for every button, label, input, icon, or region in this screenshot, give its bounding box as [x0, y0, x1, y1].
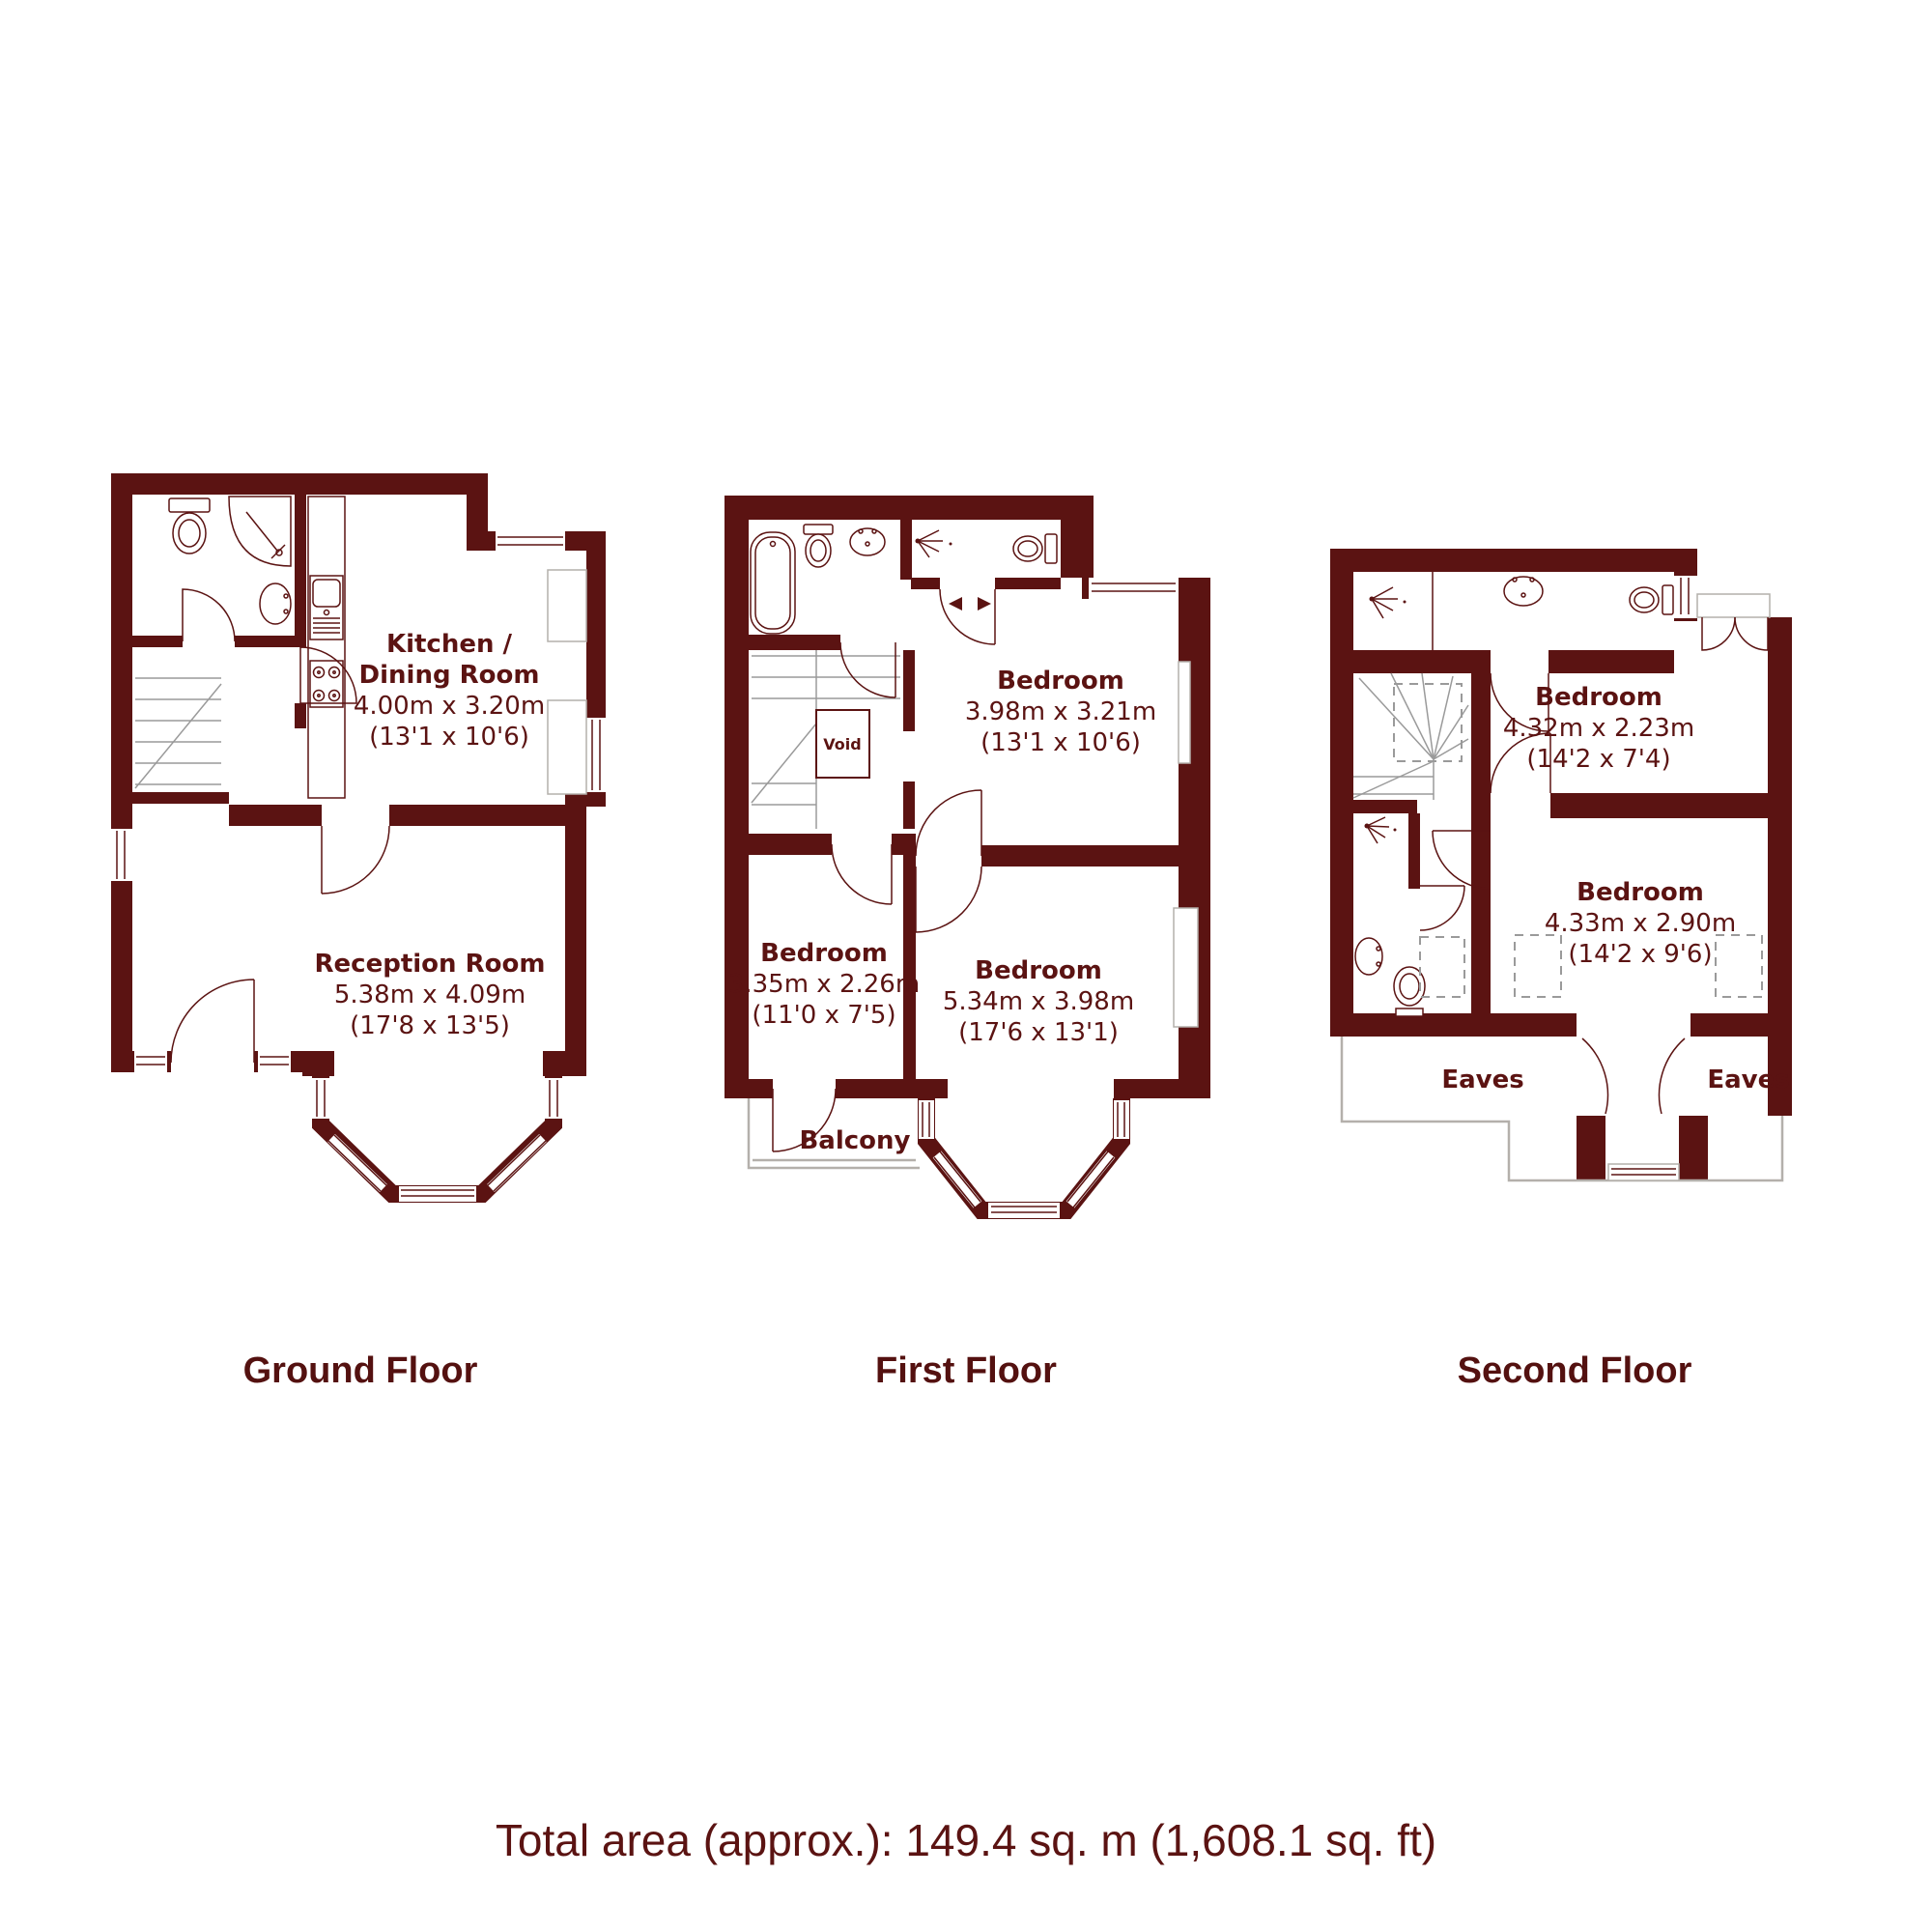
shower-cubicle-icon: [1365, 817, 1397, 843]
bedroom-front-metric: 4.33m x 2.90m: [1545, 909, 1736, 938]
toilet-icon: [169, 498, 210, 554]
bedroom-front-label: Bedroom: [975, 956, 1102, 985]
kitchen-label-2: Dining Room: [359, 661, 540, 690]
kitchen-imperial: (13'1 x 10'6): [369, 723, 529, 752]
bedroom-small-imperial: (11'0 x 7'5): [752, 1001, 895, 1030]
bedroom-rear-imperial: (13'1 x 10'6): [980, 728, 1141, 757]
bedroom-front-imperial: (17'6 x 13'1): [958, 1018, 1119, 1047]
basin-icon: [260, 583, 291, 624]
arrow-icon: [949, 597, 991, 611]
basin-icon: [1504, 577, 1543, 606]
stairs-icon: [1353, 673, 1468, 800]
window-icon: [1089, 578, 1179, 599]
toilet-icon: [804, 525, 833, 567]
total-area-text: Total area (approx.): 149.4 sq. m (1,608…: [0, 1814, 1932, 1866]
shower-icon: [1370, 587, 1406, 618]
first-floor-plan: Void B: [724, 496, 1212, 1259]
wc-toilet-icon: [1013, 534, 1057, 563]
bedroom-small-label: Bedroom: [760, 939, 888, 968]
ground-bay-window: [312, 1076, 562, 1202]
bedroom-rear-label: Bedroom: [997, 667, 1124, 696]
bedroom-rear-label: Bedroom: [1535, 683, 1662, 712]
bedroom-rear-imperial: (14'2 x 7'4): [1526, 745, 1670, 774]
bedroom-small-metric: 3.35m x 2.26m: [728, 970, 920, 999]
bathroom-basin-icon: [1355, 938, 1382, 975]
bedroom-rear-metric: 3.98m x 3.21m: [965, 697, 1156, 726]
stairs-icon: [135, 678, 221, 788]
eaves-right-label: Eaves: [1707, 1065, 1789, 1094]
alcove-recess: [548, 570, 586, 641]
ground-floor-title: Ground Floor: [109, 1350, 611, 1392]
skylight-dashed: [1716, 935, 1762, 997]
alcove-recess: [1174, 908, 1198, 1027]
ground-room-labels: Kitchen / Dining Room 4.00m x 3.20m (13'…: [315, 630, 546, 1040]
cupboard-dashed: [1420, 937, 1464, 997]
bath-icon: [751, 532, 795, 634]
first-bay-window: [919, 1098, 1129, 1218]
hob-icon: [310, 661, 343, 707]
french-doors-icon: [1674, 576, 1770, 650]
bedroom-rear-metric: 4.32m x 2.23m: [1503, 714, 1694, 743]
balcony-label: Balcony: [799, 1126, 910, 1155]
alcove-recess: [1179, 662, 1190, 763]
kitchen-label: Kitchen /: [386, 630, 513, 659]
reception-imperial: (17'8 x 13'5): [350, 1011, 510, 1040]
second-floor-title: Second Floor: [1323, 1350, 1826, 1392]
basin-icon: [850, 528, 885, 555]
bedroom-front-label: Bedroom: [1577, 878, 1704, 907]
kitchen-sink-icon: [310, 576, 343, 639]
first-floor-title: First Floor: [715, 1350, 1217, 1392]
alcove-recess: [548, 700, 586, 794]
corner-shower-icon: [229, 497, 291, 566]
second-floor-plan: Bedroom 4.32m x 2.23m (14'2 x 7'4) Bedro…: [1325, 541, 1799, 1198]
ground-floor-plan: Kitchen / Dining Room 4.00m x 3.20m (13'…: [111, 473, 609, 1222]
eaves-left-label: Eaves: [1441, 1065, 1523, 1094]
shower-icon: [916, 530, 952, 557]
kitchen-counter: [308, 497, 345, 798]
reception-label: Reception Room: [315, 950, 546, 979]
bedroom-front-metric: 5.34m x 3.98m: [943, 987, 1134, 1016]
stairs-icon: Void: [752, 650, 900, 829]
reception-metric: 5.38m x 4.09m: [334, 980, 526, 1009]
kitchen-metric: 4.00m x 3.20m: [354, 692, 545, 721]
void-label: Void: [823, 735, 861, 753]
skylight-dashed: [1515, 935, 1561, 997]
door-arc: [773, 589, 995, 1151]
eaves-outline: [1342, 1037, 1782, 1180]
bedroom-front-imperial: (14'2 x 9'6): [1568, 940, 1712, 969]
toilet-icon: [1630, 585, 1673, 614]
